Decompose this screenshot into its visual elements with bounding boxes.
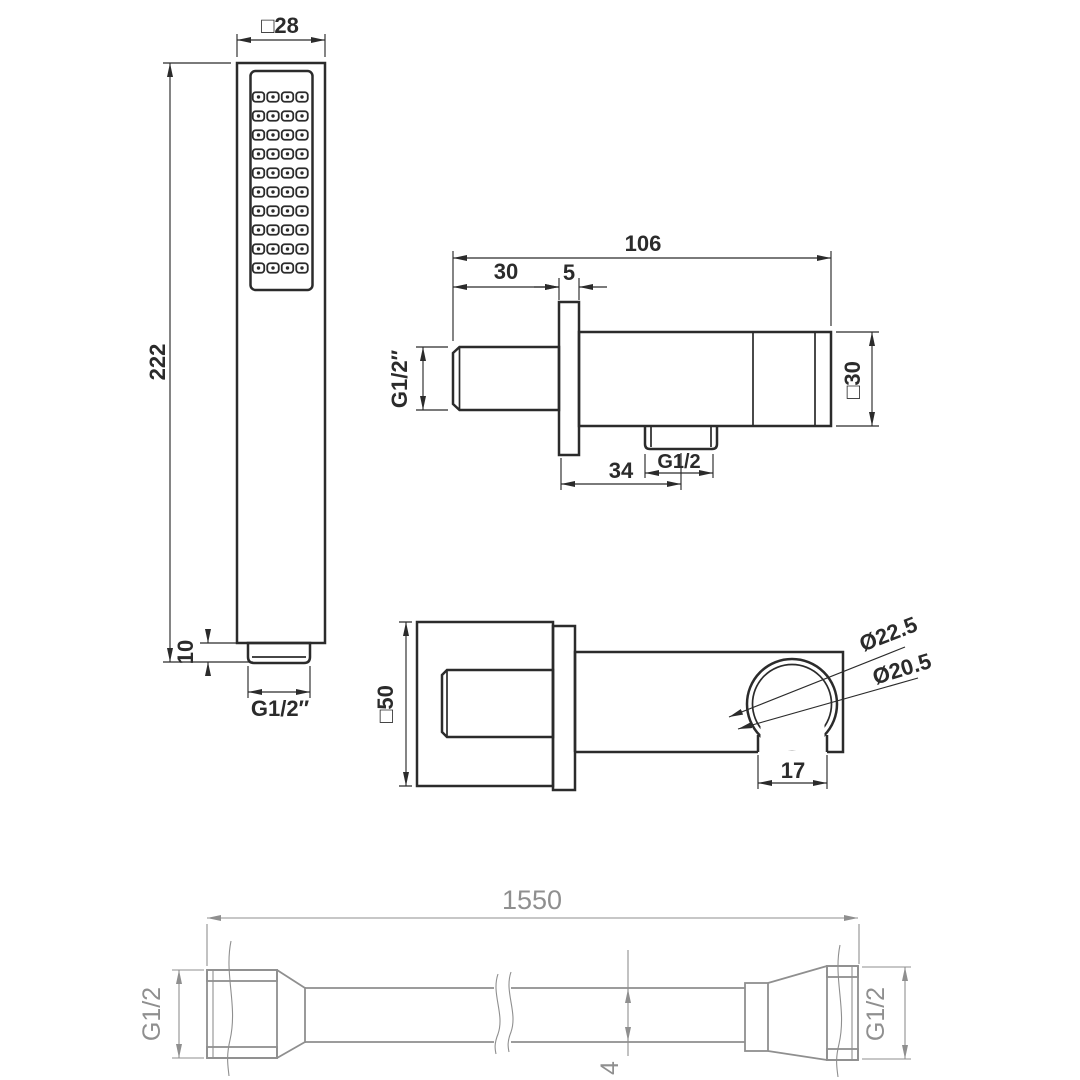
dim-flange-square-label: □50 bbox=[373, 685, 398, 723]
dim-handset-thread-label: G1/2″ bbox=[251, 696, 310, 721]
dim-holder-outer-dia-label: Ø22.5 bbox=[856, 612, 921, 657]
hand-shower-view: □28 222 10 G1/2″ bbox=[145, 13, 325, 721]
dim-body-square-label: □30 bbox=[840, 361, 865, 399]
wall-outlet-bottom-view: □50 17 Ø22.5 Ø20.5 bbox=[373, 612, 934, 790]
technical-drawing-canvas: □28 222 10 G1/2″ 106 30 5 bbox=[0, 0, 1080, 1080]
outlet-flange-plate bbox=[559, 302, 579, 455]
hose-tube bbox=[305, 988, 745, 1042]
dim-hose-left-thread-label: G1/2 bbox=[138, 987, 166, 1041]
dim-holder-opening-label: 17 bbox=[781, 758, 805, 783]
dim-inlet-thread-label: G1/2″ bbox=[387, 349, 412, 408]
outlet-body bbox=[579, 332, 831, 426]
dim-total-depth-label: 106 bbox=[625, 231, 662, 256]
dim-head-width-label: □28 bbox=[261, 13, 299, 38]
wall-outlet-side-view: 106 30 5 G1/2″ □30 34 G1/2 bbox=[387, 231, 879, 490]
dim-hose-right-thread-label: G1/2 bbox=[862, 987, 890, 1041]
shower-hose-view: 1550 G1/2 G1/2 4 bbox=[138, 885, 911, 1077]
dim-flange-thickness-label: 5 bbox=[563, 260, 575, 285]
outlet-bottom-port bbox=[645, 426, 717, 449]
inlet-pipe-bottom bbox=[442, 670, 553, 737]
dim-outlet-offset-label: 34 bbox=[609, 458, 634, 483]
hose-right-collar bbox=[745, 983, 768, 1051]
dim-total-length-label: 222 bbox=[145, 344, 170, 381]
dim-tail-length-label: 10 bbox=[173, 640, 198, 664]
dim-wall-offset-label: 30 bbox=[494, 259, 518, 284]
dim-hose-length-label: 1550 bbox=[502, 885, 562, 915]
dim-hose-dia-label: 4 bbox=[596, 1061, 624, 1075]
flange-square bbox=[417, 622, 553, 786]
nozzle-grid bbox=[253, 92, 308, 273]
handset-spray-plate bbox=[251, 71, 313, 290]
dim-holder-inner-dia-label: Ø20.5 bbox=[869, 648, 934, 689]
hose-left-nut bbox=[207, 970, 277, 1058]
hose-right-nut bbox=[827, 966, 858, 1060]
handset-connector bbox=[248, 643, 310, 663]
dim-outlet-thread-label: G1/2 bbox=[657, 451, 700, 473]
flange-plate bbox=[553, 626, 575, 790]
outlet-inlet-pipe bbox=[453, 347, 559, 410]
